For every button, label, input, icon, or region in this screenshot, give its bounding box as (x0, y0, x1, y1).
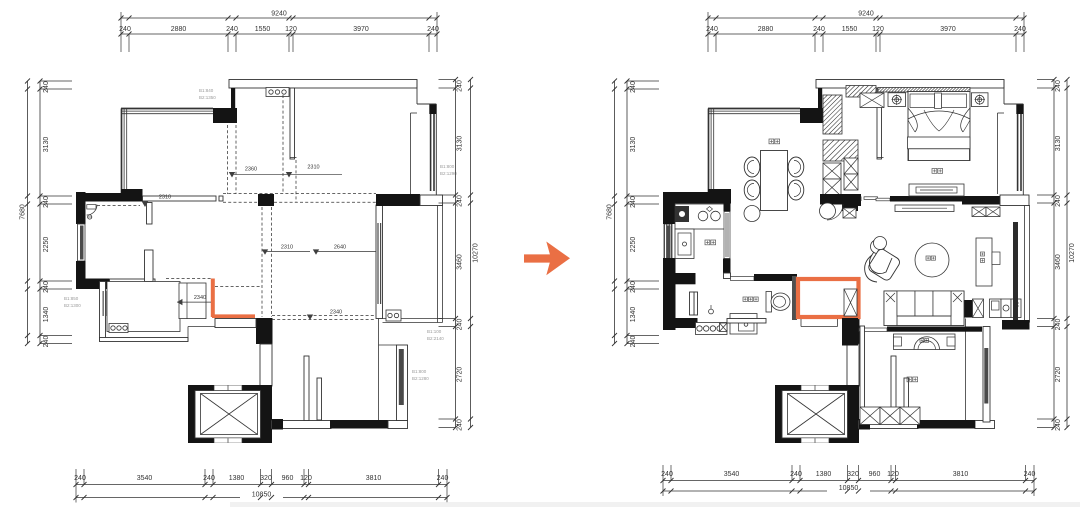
svg-text:B2:1300: B2:1300 (64, 303, 81, 308)
svg-text:120: 120 (887, 471, 899, 478)
svg-text:960: 960 (282, 475, 294, 482)
svg-text:240: 240 (1055, 195, 1062, 207)
svg-text:240: 240 (43, 281, 50, 293)
svg-text:B2:1290: B2:1290 (440, 171, 457, 176)
svg-text:320: 320 (260, 475, 272, 482)
svg-text:B2:1350: B2:1350 (199, 95, 216, 100)
svg-text:1550: 1550 (255, 26, 271, 33)
svg-text:B1:850: B1:850 (64, 296, 79, 301)
svg-text:B2:2140: B2:2140 (427, 336, 444, 341)
svg-text:240: 240 (427, 26, 439, 33)
svg-text:10270: 10270 (473, 243, 480, 263)
svg-text:2360: 2360 (245, 167, 257, 173)
svg-text:240: 240 (1055, 80, 1062, 92)
svg-text:240: 240 (630, 196, 637, 208)
svg-text:2880: 2880 (171, 26, 187, 33)
svg-text:240: 240 (457, 195, 464, 207)
svg-text:1380: 1380 (816, 471, 832, 478)
svg-text:2720: 2720 (457, 367, 464, 383)
svg-text:3970: 3970 (353, 26, 369, 33)
svg-text:10850: 10850 (839, 485, 859, 492)
svg-text:240: 240 (457, 419, 464, 431)
svg-text:240: 240 (1055, 419, 1062, 431)
svg-text:1550: 1550 (842, 26, 858, 33)
svg-text:240: 240 (630, 281, 637, 293)
svg-text:240: 240 (43, 81, 50, 93)
svg-text:3460: 3460 (457, 254, 464, 270)
svg-text:240: 240 (1024, 471, 1036, 478)
svg-text:2720: 2720 (1055, 367, 1062, 383)
svg-text:3130: 3130 (457, 136, 464, 152)
svg-text:2310: 2310 (159, 195, 171, 201)
svg-text:9240: 9240 (858, 11, 874, 18)
svg-text:240: 240 (661, 471, 673, 478)
svg-text:240: 240 (630, 81, 637, 93)
svg-text:240: 240 (813, 26, 825, 33)
svg-text:2250: 2250 (43, 237, 50, 253)
svg-text:3810: 3810 (366, 475, 382, 482)
svg-text:1380: 1380 (229, 475, 245, 482)
svg-text:240: 240 (43, 196, 50, 208)
svg-text:2310: 2310 (307, 165, 319, 171)
svg-text:240: 240 (1014, 26, 1026, 33)
svg-text:3540: 3540 (724, 471, 740, 478)
svg-text:1340: 1340 (630, 307, 637, 323)
svg-text:10850: 10850 (252, 492, 272, 499)
svg-text:240: 240 (203, 475, 215, 482)
svg-text:240: 240 (1055, 319, 1062, 331)
svg-text:120: 120 (285, 26, 297, 33)
svg-text:3130: 3130 (630, 137, 637, 153)
svg-text:320: 320 (847, 471, 859, 478)
svg-text:240: 240 (630, 336, 637, 348)
svg-text:2340: 2340 (194, 295, 206, 301)
svg-text:9240: 9240 (271, 11, 287, 18)
svg-text:240: 240 (226, 26, 238, 33)
svg-text:2250: 2250 (630, 237, 637, 253)
svg-text:B1:100: B1:100 (427, 329, 442, 334)
svg-text:2340: 2340 (330, 310, 342, 316)
svg-text:B1:840: B1:840 (199, 88, 214, 93)
svg-text:240: 240 (790, 471, 802, 478)
svg-text:120: 120 (872, 26, 884, 33)
svg-text:3810: 3810 (953, 471, 969, 478)
svg-text:240: 240 (457, 319, 464, 331)
svg-text:120: 120 (300, 475, 312, 482)
svg-text:B1:800: B1:800 (440, 164, 455, 169)
svg-text:2640: 2640 (334, 245, 346, 251)
svg-text:3540: 3540 (137, 475, 153, 482)
svg-text:240: 240 (706, 26, 718, 33)
svg-text:240: 240 (119, 26, 131, 33)
svg-text:240: 240 (437, 475, 449, 482)
svg-text:B1:800: B1:800 (412, 369, 427, 374)
svg-text:B2:1280: B2:1280 (412, 376, 429, 381)
svg-text:2310: 2310 (281, 245, 293, 251)
svg-text:10270: 10270 (1069, 243, 1076, 263)
svg-text:240: 240 (457, 80, 464, 92)
svg-text:240: 240 (74, 475, 86, 482)
svg-text:960: 960 (869, 471, 881, 478)
svg-text:3130: 3130 (43, 137, 50, 153)
svg-text:1340: 1340 (43, 307, 50, 323)
svg-text:240: 240 (43, 336, 50, 348)
svg-text:2880: 2880 (758, 26, 774, 33)
svg-text:3970: 3970 (940, 26, 956, 33)
svg-text:3130: 3130 (1055, 136, 1062, 152)
svg-text:3460: 3460 (1055, 254, 1062, 270)
